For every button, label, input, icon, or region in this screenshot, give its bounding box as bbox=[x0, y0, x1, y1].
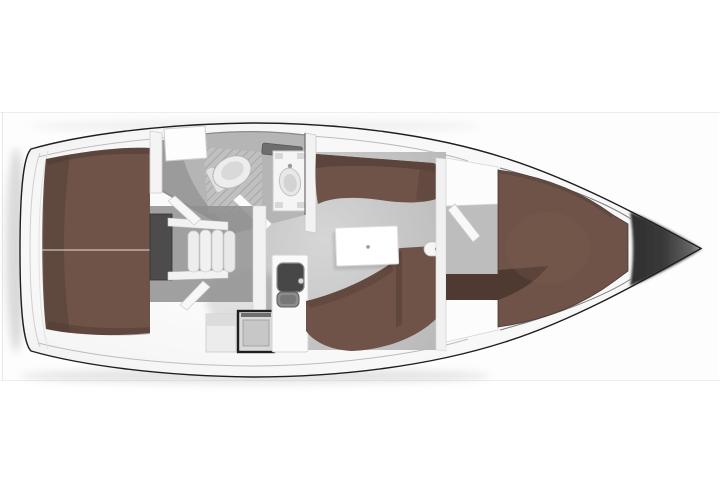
sink-faucet bbox=[298, 278, 304, 284]
yacht-floorplan bbox=[0, 0, 720, 501]
galley-sink-unit bbox=[272, 255, 308, 352]
basin-faucet bbox=[288, 164, 292, 168]
saloon-table bbox=[332, 226, 398, 270]
stove bbox=[238, 311, 274, 352]
forward-entry-step bbox=[446, 274, 498, 300]
washbasin bbox=[273, 151, 307, 211]
secondary-basin-inner bbox=[280, 295, 296, 304]
head-left-wall bbox=[150, 131, 162, 193]
head-right-wall bbox=[305, 133, 316, 233]
v-berth-center-light bbox=[506, 212, 590, 284]
galley-cabinet-top bbox=[206, 314, 236, 326]
aft-cabin bbox=[42, 148, 150, 336]
stove-knobs bbox=[241, 313, 271, 317]
galley-sink bbox=[277, 263, 304, 292]
forward-bulkhead bbox=[436, 158, 446, 351]
cockpit-locker bbox=[164, 126, 207, 161]
